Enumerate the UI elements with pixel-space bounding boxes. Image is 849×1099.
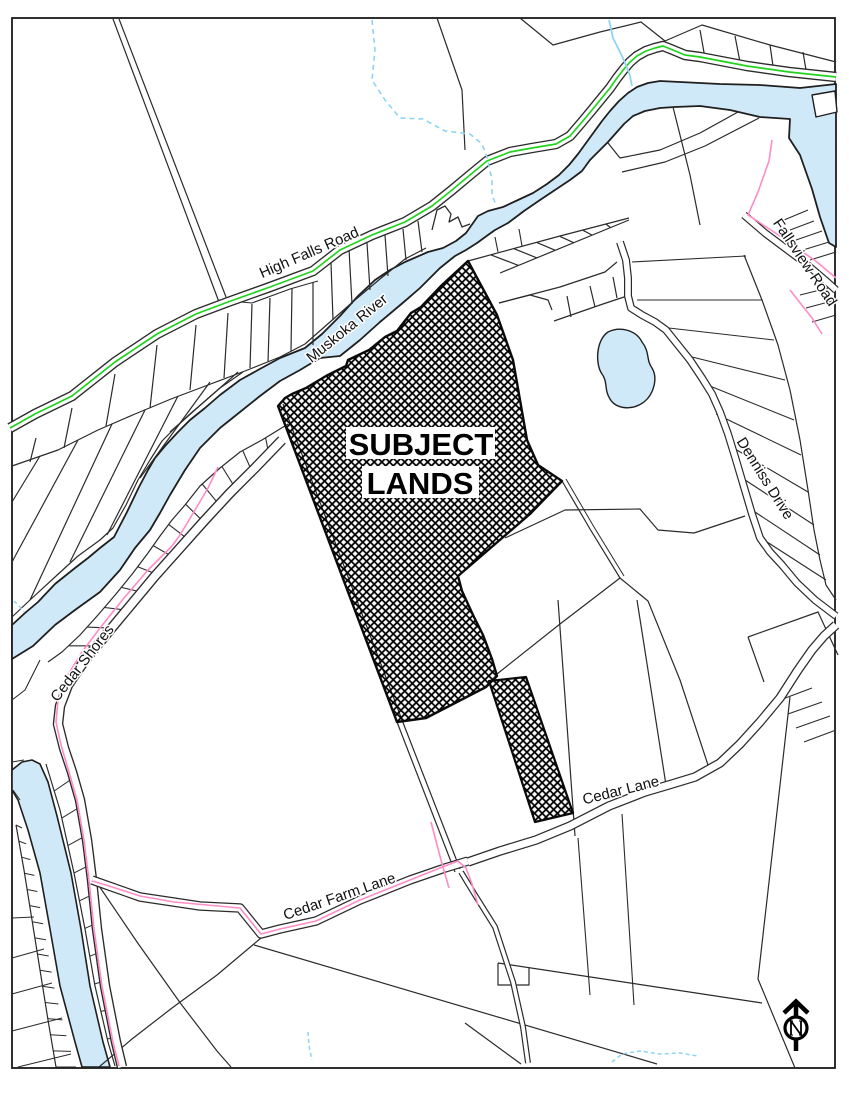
- svg-text:SUBJECT: SUBJECT: [349, 427, 494, 462]
- svg-text:LANDS: LANDS: [367, 466, 474, 501]
